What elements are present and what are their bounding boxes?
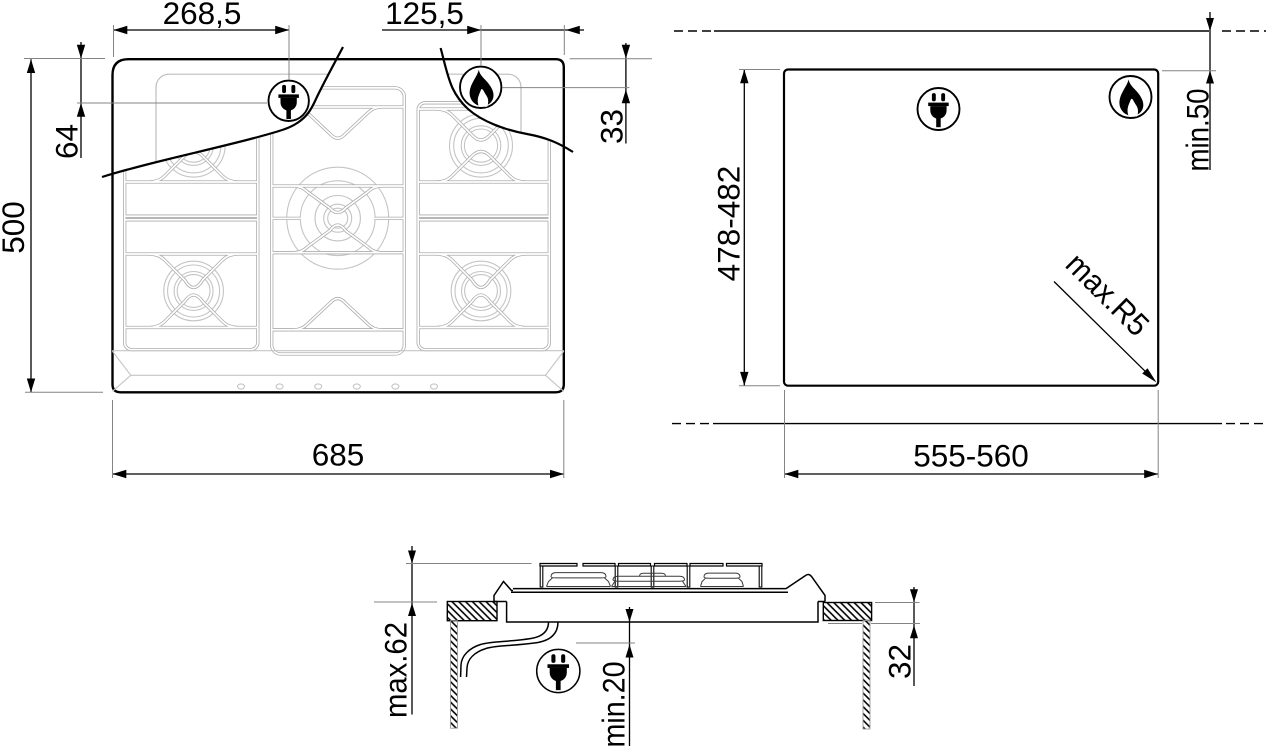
svg-text:500: 500	[0, 201, 31, 254]
svg-text:268,5: 268,5	[163, 0, 242, 31]
svg-text:125,5: 125,5	[385, 0, 464, 31]
svg-text:478-482: 478-482	[711, 166, 747, 282]
svg-text:64: 64	[49, 124, 85, 159]
svg-text:33: 33	[594, 109, 630, 144]
svg-text:32: 32	[882, 644, 918, 679]
svg-text:555-560: 555-560	[913, 438, 1029, 474]
svg-text:min.50: min.50	[1180, 89, 1216, 172]
svg-text:max.62: max.62	[378, 622, 414, 718]
svg-text:685: 685	[312, 437, 365, 473]
svg-text:min.20: min.20	[596, 662, 632, 748]
